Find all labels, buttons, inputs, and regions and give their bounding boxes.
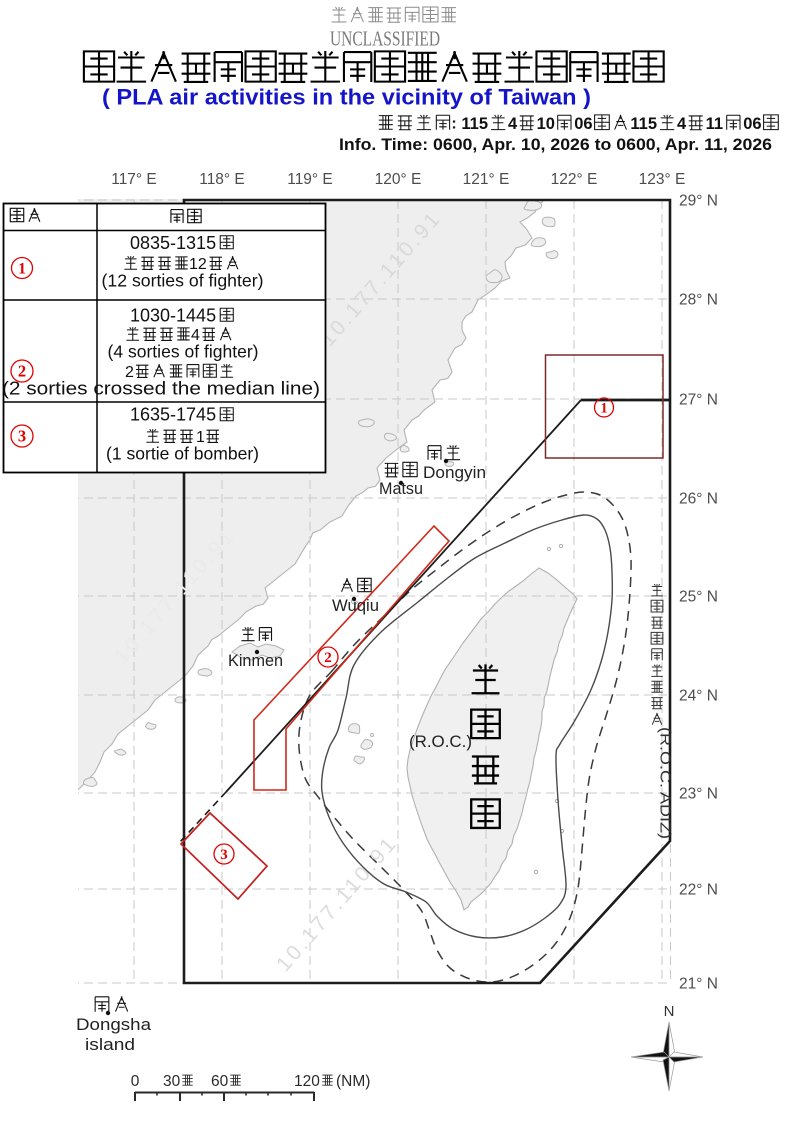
- svg-text:28° N: 28° N: [679, 292, 718, 309]
- svg-text:island: island: [85, 1035, 135, 1054]
- svg-text:(1 sortie of bomber): (1 sortie of bomber): [106, 444, 259, 464]
- svg-text:22° N: 22° N: [679, 882, 718, 899]
- svg-text:122° E: 122° E: [551, 171, 598, 188]
- svg-text:27° N: 27° N: [679, 392, 718, 409]
- svg-text::: :: [451, 116, 456, 133]
- svg-text:(R.O.C. ADIZ): (R.O.C. ADIZ): [657, 727, 673, 839]
- svg-text:Info. Time: 0600, Apr. 10, 202: Info. Time: 0600, Apr. 10, 2026 to 0600,…: [339, 135, 772, 154]
- svg-text:UNCLASSIFIED: UNCLASSIFIED: [330, 27, 440, 51]
- svg-text:115: 115: [461, 115, 488, 133]
- svg-text:10: 10: [537, 115, 555, 133]
- svg-text:0: 0: [131, 1073, 140, 1090]
- svg-text:60: 60: [211, 1073, 229, 1090]
- svg-text:4: 4: [677, 115, 687, 133]
- svg-text:120: 120: [294, 1073, 320, 1090]
- svg-text:24° N: 24° N: [679, 688, 718, 705]
- svg-text:4: 4: [508, 115, 518, 133]
- svg-text:06: 06: [574, 115, 592, 133]
- svg-text:1: 1: [600, 400, 607, 416]
- svg-text:(12 sorties of fighter): (12 sorties of fighter): [102, 271, 264, 291]
- svg-text:(NM): (NM): [336, 1073, 370, 1090]
- svg-text:115: 115: [630, 115, 657, 133]
- svg-text:( PLA air activities in the vi: ( PLA air activities in the vicinity of …: [102, 85, 591, 110]
- svg-text:29° N: 29° N: [679, 193, 718, 210]
- svg-text:(R.O.C.): (R.O.C.): [409, 732, 472, 751]
- svg-text:0835-1315: 0835-1315: [130, 233, 216, 253]
- svg-text:3: 3: [220, 847, 228, 863]
- svg-text:N: N: [664, 1003, 675, 1020]
- svg-text:26° N: 26° N: [679, 491, 718, 508]
- svg-text:11: 11: [706, 115, 723, 133]
- svg-text:2: 2: [18, 362, 26, 381]
- svg-text:121° E: 121° E: [463, 171, 510, 188]
- svg-text:Dongsha: Dongsha: [76, 1015, 152, 1034]
- svg-text:30: 30: [163, 1073, 181, 1090]
- svg-text:1635-1745: 1635-1745: [130, 405, 216, 425]
- svg-text:1030-1445: 1030-1445: [130, 306, 216, 326]
- svg-text:(4 sorties of fighter): (4 sorties of fighter): [108, 342, 259, 362]
- svg-text:119° E: 119° E: [287, 171, 333, 188]
- svg-text:1: 1: [18, 260, 26, 277]
- svg-text:117° E: 117° E: [111, 171, 157, 188]
- svg-text:25° N: 25° N: [679, 589, 718, 606]
- svg-text:3: 3: [18, 427, 26, 446]
- svg-text:Dongyin: Dongyin: [423, 463, 486, 482]
- svg-text:23° N: 23° N: [679, 786, 718, 803]
- svg-text:Kinmen: Kinmen: [228, 651, 283, 670]
- svg-text:120° E: 120° E: [375, 171, 422, 188]
- svg-text:2: 2: [324, 650, 332, 666]
- svg-text:(2 sorties crossed the median: (2 sorties crossed the median line): [2, 379, 320, 399]
- svg-text:06: 06: [743, 115, 761, 133]
- svg-text:21° N: 21° N: [679, 976, 718, 993]
- svg-text:123° E: 123° E: [639, 171, 686, 188]
- svg-text:118° E: 118° E: [199, 171, 245, 188]
